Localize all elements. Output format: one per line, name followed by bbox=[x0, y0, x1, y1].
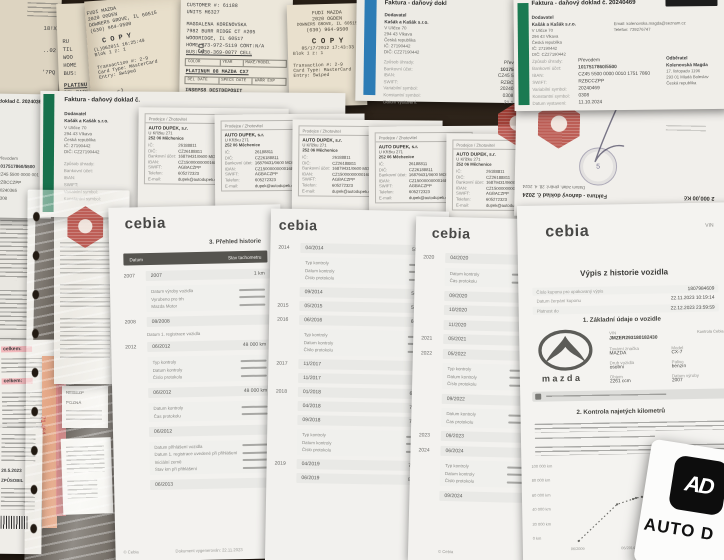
field-label: IBAN: bbox=[384, 72, 396, 77]
sleeve-punch-holes bbox=[26, 198, 44, 558]
field-value: 20240 bbox=[500, 87, 513, 92]
buyer-line: Česká republika bbox=[666, 80, 696, 85]
flipped-title: Faktura - daňový doklad č. 2024 bbox=[522, 191, 607, 199]
field-label: Číslo kuponu pro opakovaný výpis bbox=[536, 288, 603, 294]
field-label: Způsob úhrady: bbox=[64, 161, 124, 166]
supplier-line: 294 43 Vlkava bbox=[532, 34, 559, 39]
stub-fragment: '7PQ bbox=[42, 69, 55, 76]
supplier-line: IČ: 27190442 bbox=[384, 43, 410, 48]
cebia-report-a: cebia 3. Přehled historie Datum Stav tac… bbox=[108, 204, 287, 560]
invoice-title: Faktura - daňový dokl bbox=[385, 0, 447, 7]
vin-corner-label: VIN bbox=[705, 223, 713, 229]
field-label: Způsob úhrady: bbox=[532, 58, 574, 63]
inspection-date: 20.5.2023 bbox=[1, 468, 21, 473]
cebia-logo: cebia bbox=[545, 223, 589, 242]
field-label: Bankovní účet: bbox=[64, 168, 124, 173]
stub-fragment: ..02 bbox=[43, 47, 56, 54]
customer-phone: Telefon: 739276747 bbox=[614, 27, 651, 32]
field-value: CZ45 5500 0000 0010 1751 7860 bbox=[578, 72, 664, 78]
field-value: RZBC bbox=[500, 81, 513, 86]
footer-copyright: © Cebia bbox=[438, 549, 453, 554]
mazda-logo bbox=[537, 329, 594, 372]
supplier-name: Kašák a Kašák s.r.o. bbox=[384, 19, 428, 25]
constant-symbol: 0308 bbox=[0, 196, 7, 201]
field-value: RZBCCZPP bbox=[578, 79, 664, 85]
photo-of-car-documents: celkem: celkem: 71 464 NEBEZP POZNÁ 20.5… bbox=[0, 0, 724, 560]
field-label: SWIFT: bbox=[532, 79, 574, 84]
hexagonal-stamp-icon bbox=[67, 206, 103, 248]
field-value: 21.1 bbox=[504, 100, 513, 105]
col-header: SPECS DATE bbox=[219, 78, 253, 85]
buyer-line: 17. listopadu 1196 bbox=[666, 68, 700, 73]
field-label: Variabilní symbol: bbox=[383, 86, 417, 91]
stub-fragment: 18!X bbox=[43, 25, 56, 32]
section-1-title: 1. Základní údaje o vozidle bbox=[583, 316, 661, 324]
variable-symbol: 20240365 bbox=[0, 188, 17, 193]
table-header-km: Stav tachometru bbox=[228, 254, 262, 260]
field-value: 0308 bbox=[578, 93, 664, 99]
supplier-line: Česká republika bbox=[384, 37, 416, 42]
supplier-line: 294 43 Vlkava bbox=[64, 131, 92, 136]
field-value: Převodem bbox=[578, 58, 664, 64]
field-label: IBAN: bbox=[532, 72, 574, 77]
receipt-slip: Blok 1 z: 1 bbox=[293, 50, 363, 57]
receipt-entry: Entry: Swiped bbox=[293, 72, 363, 79]
supplier-line: V Uličce 70 bbox=[64, 125, 86, 130]
footer-generated: Dokument vygenerován: 22.11.2023 bbox=[175, 547, 242, 553]
supplier-line: V Uličce 70 bbox=[532, 28, 553, 33]
field-label: SWIFT: bbox=[384, 79, 398, 84]
cebia-check-link: Kontrola Cebia bbox=[697, 328, 724, 333]
supplier-line: 294 43 Vlkava bbox=[384, 31, 412, 36]
supplier-line: Česká republika bbox=[532, 40, 562, 45]
stamp-03: 03 bbox=[196, 43, 206, 53]
buyer-line: 293 01 Mladá Boleslav bbox=[666, 74, 708, 79]
field-value: 11.10.2024 bbox=[579, 100, 665, 106]
cebia-logo: cebia bbox=[124, 215, 166, 233]
supplier-line: IČ: 27190442 bbox=[64, 143, 90, 148]
receipt-line: WOO bbox=[63, 54, 73, 61]
supplier-name: Kašák a Kašák s.r.o. bbox=[64, 118, 108, 123]
supplier-line: Česká republika bbox=[64, 137, 96, 142]
field-label: Způsob úhrady: bbox=[384, 59, 415, 64]
section-title: 3. Přehled historie bbox=[209, 239, 261, 246]
field-label: Variabilní symbol: bbox=[532, 86, 574, 91]
supplier-label: Dodavatel bbox=[384, 12, 406, 17]
field-label: Konstantní symbol: bbox=[383, 92, 420, 98]
caused-label: ZPŮSOBIL bbox=[1, 478, 23, 483]
field-value: 22.12.2023 23:59:59 bbox=[671, 305, 715, 311]
col-header: COLOR bbox=[186, 59, 221, 66]
green-binder-stripe bbox=[517, 3, 529, 105]
supplier-line: DIČ: CZ27190442 bbox=[532, 52, 566, 57]
supplier-label: Dodavatel bbox=[64, 111, 86, 116]
receipt-line: TIL bbox=[63, 46, 73, 53]
field-value: CZ45 5 bbox=[498, 74, 514, 79]
buyer-name: Kolenovská Magda bbox=[666, 62, 708, 67]
redacted-bar bbox=[665, 0, 717, 7]
supplier-name: Kašák a Kašák s.r.o. bbox=[532, 21, 576, 26]
auto-dupek-monogram: AD bbox=[668, 455, 724, 517]
pay-method: Převodem bbox=[0, 156, 18, 161]
footer-copyright: © Cebia bbox=[123, 549, 138, 554]
field-value: 1017517860/5500 bbox=[578, 65, 664, 71]
swift: RZBCCZPP bbox=[0, 180, 21, 185]
iban: CZ45 5500 0000 001 bbox=[0, 172, 39, 178]
b ank-account: 1017517860/5500 bbox=[0, 164, 35, 170]
supplier-label: Dodavatel bbox=[532, 15, 554, 20]
vin-label: VIN bbox=[609, 330, 616, 335]
customer-addr: 7982 BURR RIDGE CT #205 bbox=[186, 28, 255, 35]
supplier-line: IČ: 27190442 bbox=[532, 46, 557, 51]
cebia-logo: cebia bbox=[432, 225, 471, 242]
receipt-customer: CUSTOMER #: 61188 UNITS M6327 MAGDALENA … bbox=[179, 0, 293, 107]
registration-label: Datum 1. registrace vozidla bbox=[147, 329, 271, 337]
receipt-line: HOME bbox=[63, 61, 76, 68]
cebia-logo: cebia bbox=[279, 217, 318, 234]
col-header: WARR EXP bbox=[253, 78, 286, 85]
customer-addr: WOODRIDGE, IL 60517 bbox=[186, 35, 243, 42]
field-label: Datum vystavení: bbox=[383, 99, 417, 104]
notice-bar bbox=[532, 388, 724, 401]
invoice-b: Faktura - daňový doklad č. 20240469 Doda… bbox=[513, 0, 724, 111]
receipt-line: RU bbox=[62, 38, 69, 45]
field-label: SWIFT: bbox=[64, 182, 124, 187]
field-label: Datum čerpání kuponu bbox=[536, 298, 581, 304]
invoice-title: doklad č. 20240365 bbox=[0, 99, 44, 106]
invoice-title: Faktura - daňový doklad č. bbox=[64, 97, 140, 104]
invoice-title: Faktura - daňový doklad č. 20240469 bbox=[531, 0, 635, 7]
field-value: 0308 bbox=[503, 94, 514, 99]
supplier-line: DIČ: CZ27190442 bbox=[64, 149, 99, 154]
field-label: Konstantní symbol: bbox=[532, 93, 574, 98]
receipt-line: PLATINU bbox=[64, 81, 87, 89]
field-value: dupek@autodupek.cz bbox=[178, 176, 219, 182]
flipped-amount: 2 000,00 Kč bbox=[684, 194, 715, 201]
field-value: 22.11.2023 10:19:14 bbox=[671, 296, 715, 302]
buyer-label: Odběratel bbox=[666, 55, 688, 60]
field-label: Bankovní účet: bbox=[532, 65, 574, 70]
customer-email: Email: kolenovska.magda@seznam.cz bbox=[614, 20, 686, 26]
customer-number: CUSTOMER #: 61188 bbox=[187, 2, 238, 9]
receipt-line: BUS: bbox=[63, 69, 76, 76]
blue-binder-stripe bbox=[363, 0, 376, 95]
field-value: 10175 bbox=[500, 67, 513, 72]
vehicle-line: PLATINUM 08 MAZDA CX7 bbox=[186, 68, 249, 75]
auto-dupek-brand: AUTO D bbox=[642, 514, 715, 545]
vin-value: JMZER293180182430 bbox=[609, 336, 657, 342]
col-header: MAKE/MODEL bbox=[243, 60, 286, 67]
field-label: Platnost do bbox=[537, 308, 559, 313]
report-title: Výpis z historie vozidla bbox=[580, 267, 668, 278]
customer-units: UNITS M6327 bbox=[187, 9, 220, 16]
field-value: 1807984609 bbox=[688, 286, 715, 291]
mazda-wordmark: mazda bbox=[542, 373, 583, 384]
invoice-a: Faktura - daňový dokl Dodavatel Kašák a … bbox=[355, 0, 526, 103]
field-label: E-mail: bbox=[148, 176, 178, 182]
table-header-date: Datum bbox=[129, 257, 143, 262]
field-value: 20240469 bbox=[578, 86, 664, 92]
section-2-title: 2. Kontrola najetých kilometrů bbox=[576, 407, 665, 416]
field-label: Bankovní účet: bbox=[384, 66, 413, 71]
customer-name: MAGDALENA KORENOVSKA bbox=[186, 21, 246, 28]
col-header: DEL DATE bbox=[185, 77, 219, 84]
supplier-line: V Uličce 70 bbox=[384, 25, 406, 30]
col-header: YEAR bbox=[220, 60, 243, 66]
field-value: Přev bbox=[504, 61, 514, 66]
field-label: IBAN: bbox=[64, 175, 124, 180]
supplier-line: DIČ: CZ27190442 bbox=[384, 49, 419, 54]
field-label: Datum vystavení: bbox=[533, 100, 575, 105]
